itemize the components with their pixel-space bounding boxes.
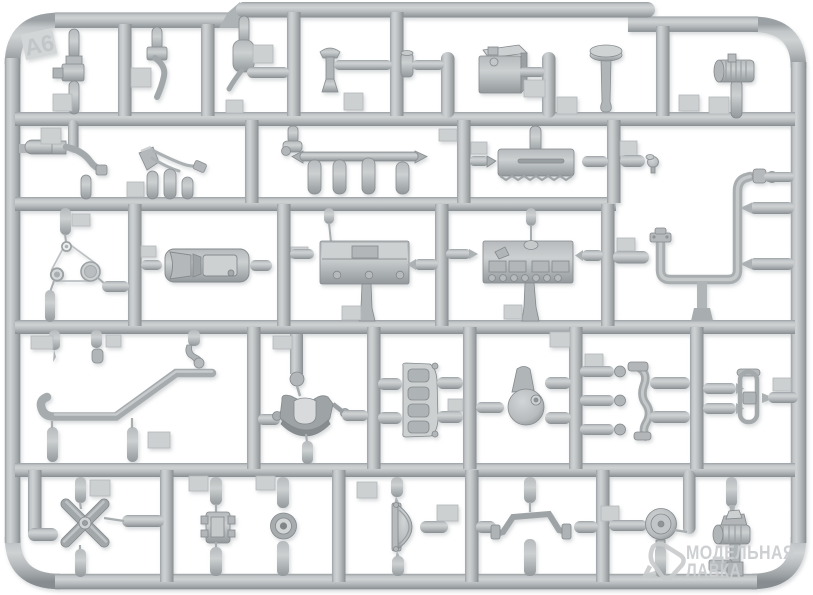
svg-text:A6: A6 xyxy=(22,29,56,61)
svg-text:ЛАВКА: ЛАВКА xyxy=(686,561,741,582)
